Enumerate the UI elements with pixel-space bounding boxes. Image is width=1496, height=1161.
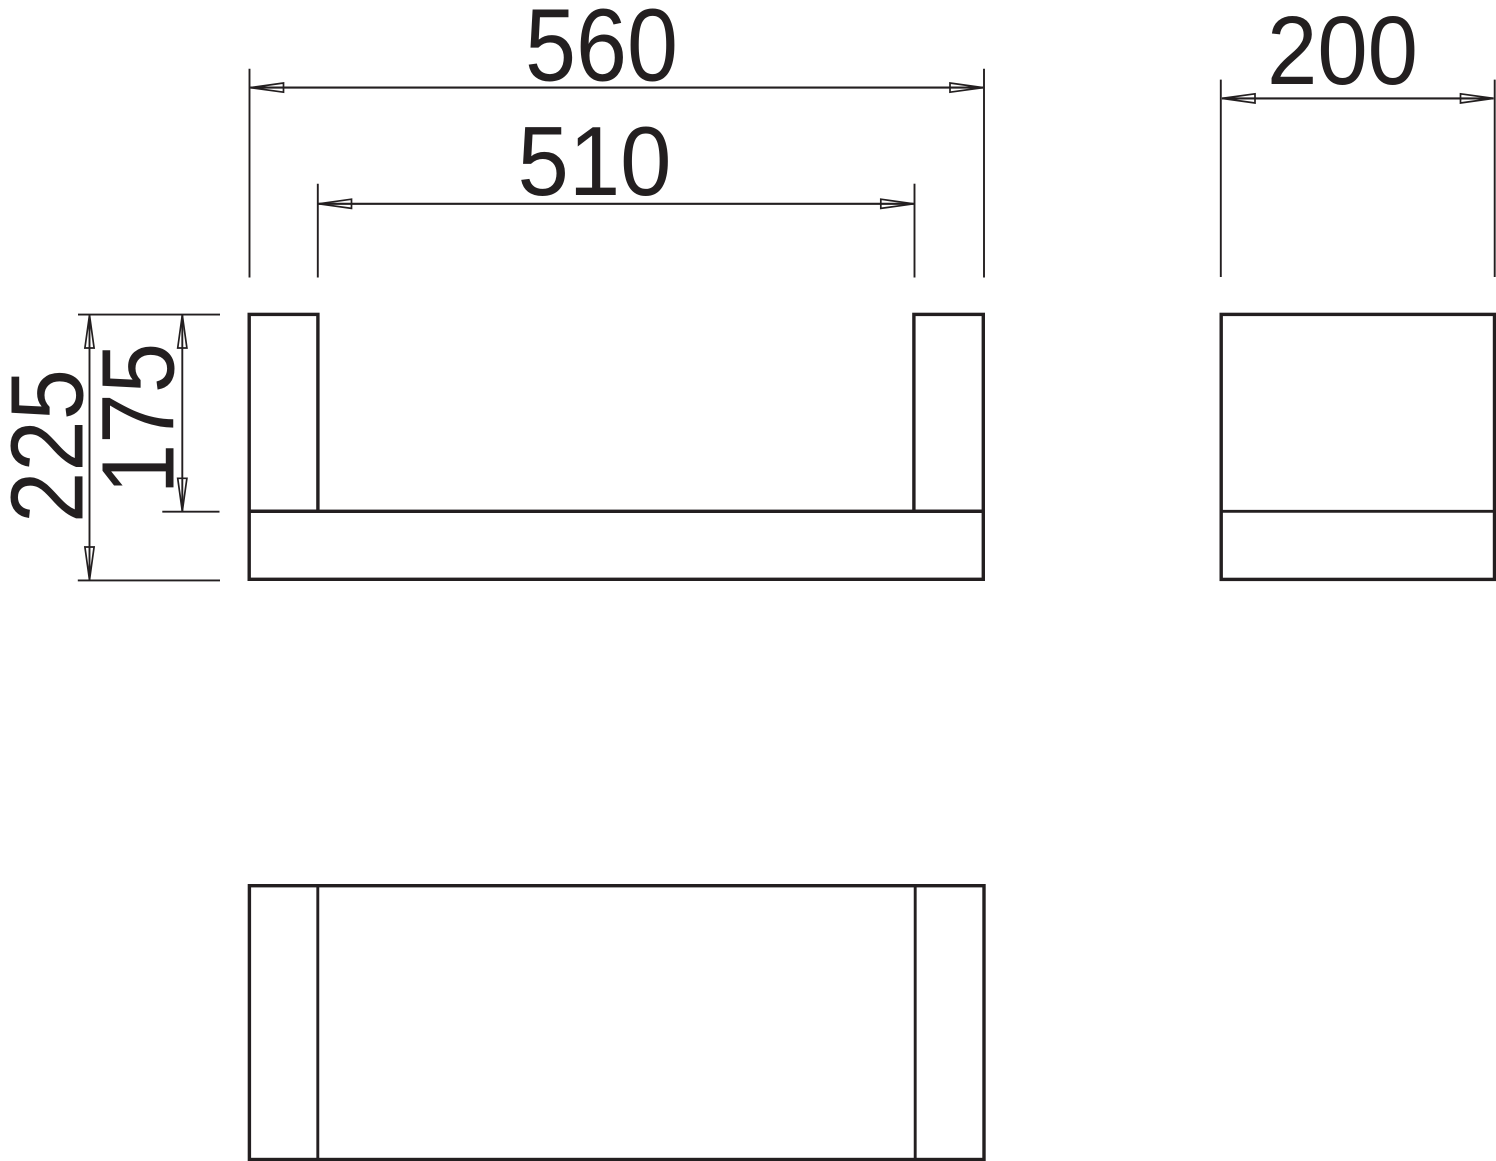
svg-text:175: 175 bbox=[80, 343, 195, 495]
svg-text:200: 200 bbox=[1267, 0, 1418, 105]
svg-text:510: 510 bbox=[518, 106, 672, 216]
svg-text:560: 560 bbox=[525, 0, 678, 103]
